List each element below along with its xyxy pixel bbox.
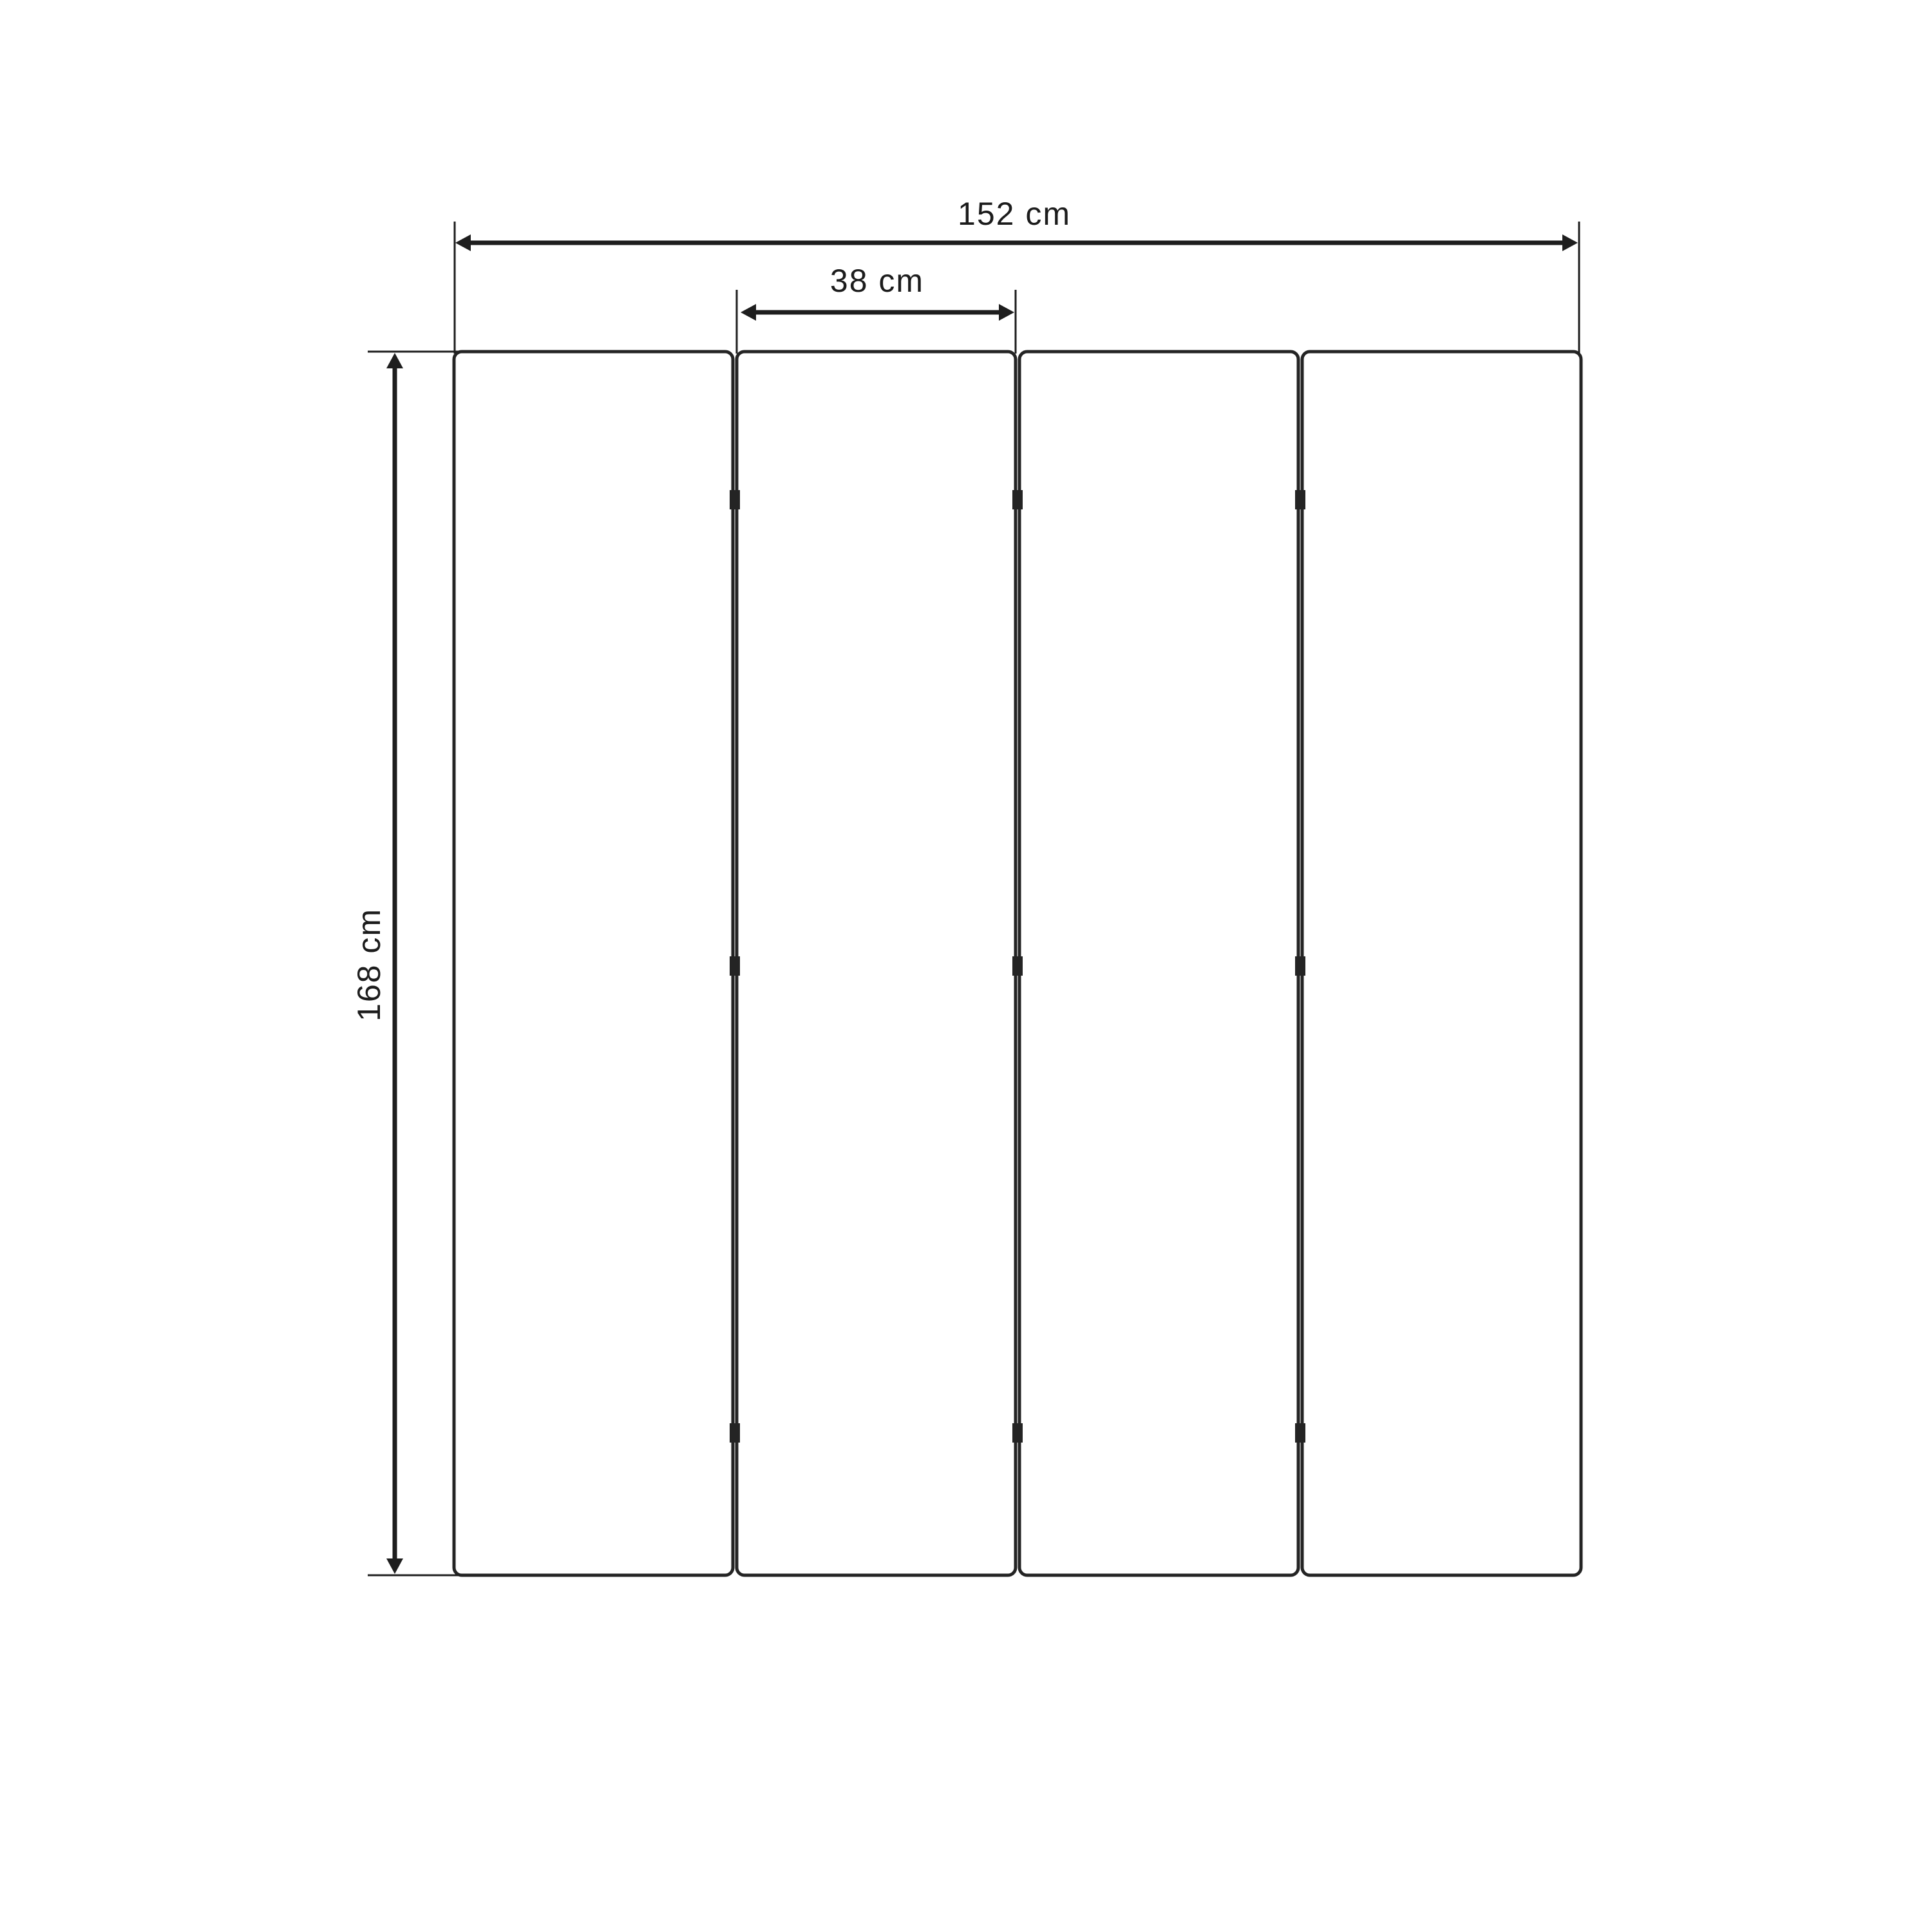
diagram-drawing: 152 cm 38 cm 168 cm	[0, 0, 1932, 1932]
arrow-right-icon	[1562, 234, 1578, 251]
panel-4	[1302, 352, 1581, 1575]
hinge-mark	[1012, 490, 1023, 509]
total-width-label: 152 cm	[958, 196, 1071, 232]
arrow-left-icon	[455, 234, 471, 251]
height-label: 168 cm	[351, 908, 387, 1021]
dimension-diagram: 152 cm 38 cm 168 cm	[0, 0, 1932, 1932]
arrow-down-icon	[386, 1558, 403, 1574]
hinge-mark	[730, 490, 740, 509]
panel-3	[1019, 352, 1298, 1575]
hinge-mark	[1012, 1423, 1023, 1443]
arrow-up-icon	[386, 353, 403, 368]
hinge-mark	[730, 956, 740, 976]
panel-width-label: 38 cm	[830, 263, 924, 299]
height-dimension: 168 cm	[351, 352, 460, 1575]
hinge-mark	[1012, 956, 1023, 976]
total-width-dimension: 152 cm	[455, 196, 1579, 354]
arrow-left-icon	[741, 304, 756, 321]
hinge-mark	[1295, 956, 1305, 976]
hinge-mark	[1295, 1423, 1305, 1443]
hinge-mark	[1295, 490, 1305, 509]
panel-2	[737, 352, 1016, 1575]
hinge-mark	[730, 1423, 740, 1443]
arrow-right-icon	[999, 304, 1014, 321]
panel-width-dimension: 38 cm	[737, 263, 1016, 354]
panel-1	[454, 352, 733, 1575]
